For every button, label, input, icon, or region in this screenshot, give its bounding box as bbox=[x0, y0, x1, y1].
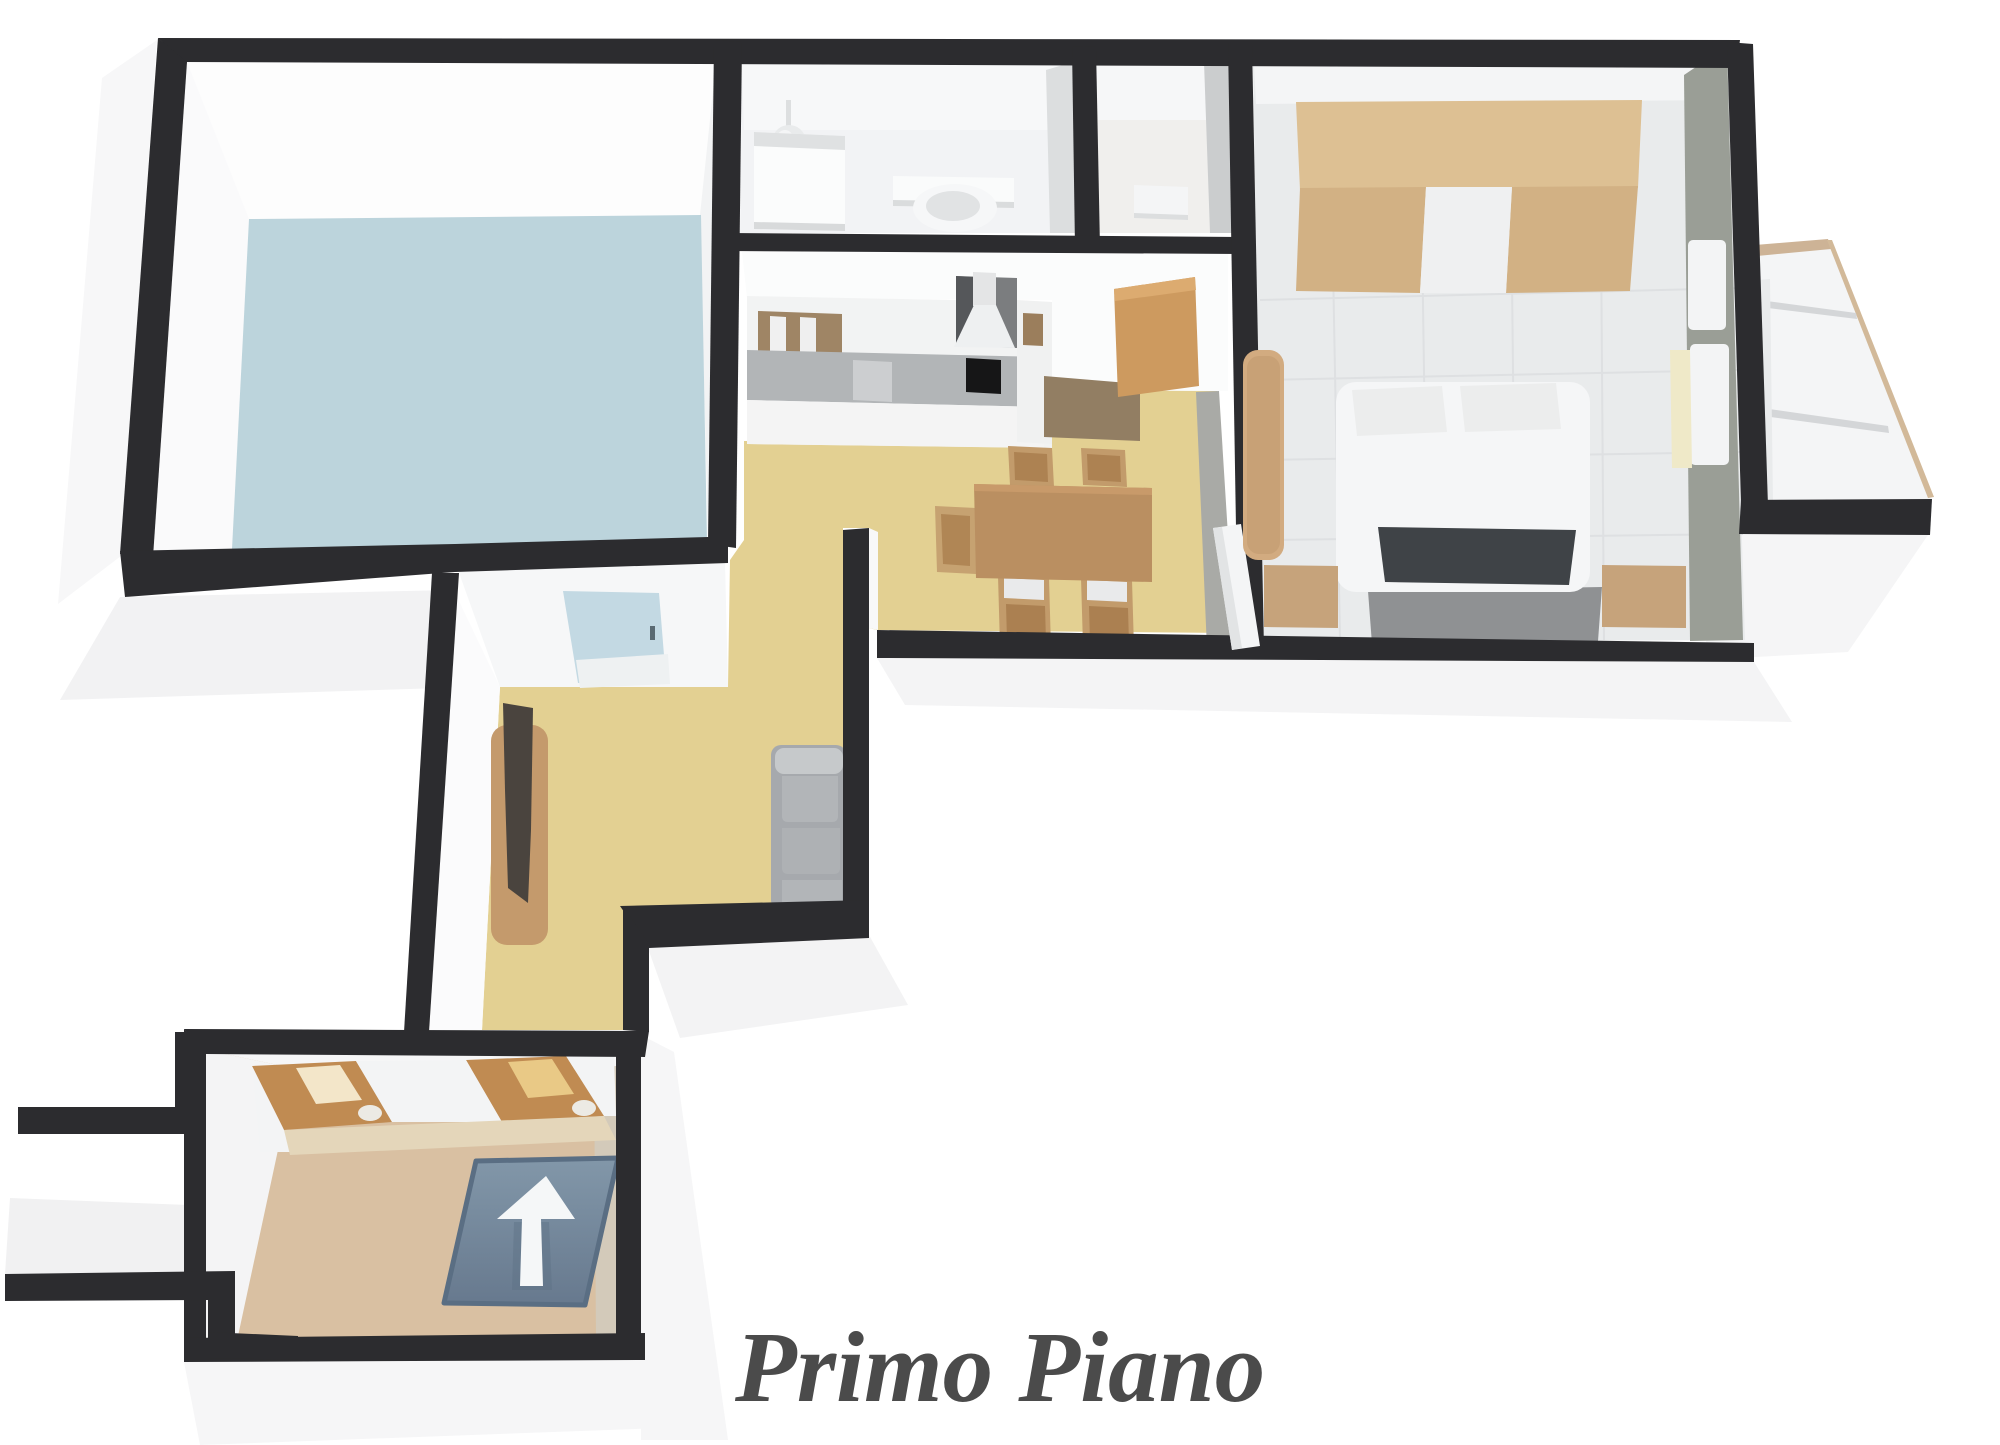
svg-text:Primo Piano: Primo Piano bbox=[734, 1311, 1265, 1423]
